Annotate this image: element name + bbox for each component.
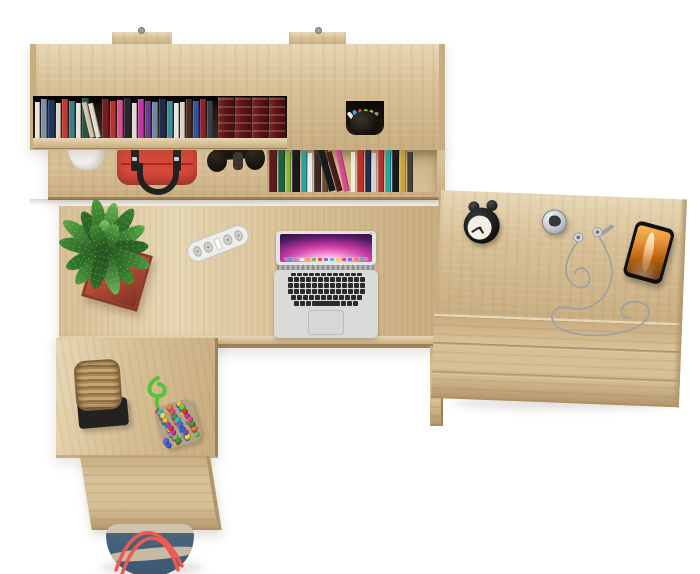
keyboard-key: [306, 283, 311, 288]
keyboard-key: [351, 295, 356, 300]
keyboard-key: [348, 289, 353, 294]
keyboard-key: [294, 301, 299, 306]
earphone-plug: [602, 226, 611, 233]
keyboard-key: [354, 289, 359, 294]
keyboard-key: [297, 295, 302, 300]
keyboard-key: [342, 283, 347, 288]
phone-screen-glow: [640, 231, 657, 272]
shelf-upper-opening: [33, 96, 287, 138]
keyboard-key: [297, 273, 302, 276]
keyboard-key: [288, 277, 293, 282]
encyclopedia-spine: [252, 97, 268, 138]
book-spine: [372, 153, 377, 192]
pen-cup-nook: [346, 101, 384, 135]
power-socket: [222, 233, 234, 246]
book-spine: [48, 100, 55, 138]
keyboard-key: [288, 283, 293, 288]
keyboard-key: [315, 295, 320, 300]
headphone-earcup: [207, 150, 227, 172]
keyboard-key: [345, 273, 350, 276]
keyboard-key: [300, 277, 305, 282]
book-spine: [110, 101, 116, 138]
keyboard-key: [309, 295, 314, 300]
keyboard-row: [286, 301, 366, 306]
keyboard-key: [306, 301, 311, 306]
power-socket: [202, 241, 214, 254]
book-spine: [132, 103, 137, 138]
keyboard-key: [330, 277, 335, 282]
dock-icon: [360, 258, 364, 261]
flower-pot-body: [68, 147, 106, 170]
keyboard-key: [347, 301, 352, 306]
laptop-trackpad: [308, 310, 344, 335]
keyboard-key: [288, 289, 293, 294]
book-spine: [200, 99, 206, 138]
plant-foliage: [56, 202, 152, 298]
keyboard-key: [306, 277, 311, 282]
book-spine: [407, 152, 413, 192]
keyboard-key: [324, 289, 329, 294]
keyboard-key: [360, 277, 365, 282]
keyboard-key: [315, 273, 320, 276]
keyboard-key: [324, 277, 329, 282]
book-spine: [308, 153, 313, 192]
keyboard-key: [294, 289, 299, 294]
book-spine: [400, 150, 406, 192]
book-spine: [207, 101, 213, 138]
power-socket: [192, 245, 204, 258]
alarm-clock: [463, 203, 505, 247]
book-spine: [292, 146, 300, 192]
book-spine: [301, 151, 307, 192]
mount-screw-right-icon: [315, 27, 322, 34]
keyboard-key: [291, 295, 296, 300]
keyboard-key: [309, 273, 314, 276]
keyboard-key: [303, 295, 308, 300]
dock-icon: [348, 258, 352, 261]
drawer-seam: [432, 371, 680, 384]
keyboard-key: [353, 301, 358, 306]
keyboard-key: [294, 277, 299, 282]
keyboard-key: [291, 273, 296, 276]
book-spine: [152, 102, 158, 138]
keyboard-key: [327, 295, 332, 300]
dock-icon: [312, 258, 316, 261]
laptop-deck: [274, 270, 378, 338]
keyboard-key: [306, 289, 311, 294]
book-spine: [286, 152, 291, 192]
keyboard-key: [300, 289, 305, 294]
book-spine: [167, 101, 173, 138]
keyboard-key: [336, 277, 341, 282]
book-spine: [159, 99, 166, 138]
keyboard-key: [360, 283, 365, 288]
keyboard-row: [286, 283, 366, 288]
keyboard-key: [318, 289, 323, 294]
clock-center-pin: [478, 226, 481, 229]
keyboard-key: [300, 283, 305, 288]
keyboard-key: [321, 295, 326, 300]
book-spine: [278, 147, 285, 192]
book-spine: [62, 99, 68, 138]
headphone-hinge: [233, 152, 243, 170]
keyboard-key: [351, 273, 356, 276]
laptop-dock: [284, 257, 368, 261]
book-spine: [186, 99, 192, 138]
dock-icon: [318, 258, 322, 261]
encyclopedia-set: [217, 96, 285, 138]
keyboard-key: [342, 277, 347, 282]
keyboard-key: [324, 283, 329, 288]
shelf-books-lower: [267, 145, 437, 192]
book-spine: [378, 148, 384, 192]
keyboard-key: [303, 273, 308, 276]
keyboard-key: [357, 273, 362, 276]
keyboard-row: [286, 295, 366, 300]
keyboard-key: [336, 289, 341, 294]
keyboard-row: [286, 277, 366, 282]
handbag-handle: [137, 163, 179, 195]
laptop-lid: [276, 231, 376, 265]
laptop-screen: [280, 234, 372, 262]
keyboard-row: [286, 289, 366, 294]
pen-cup: [350, 111, 380, 135]
shelf-board-edge: [33, 138, 287, 149]
keyboard-key: [294, 283, 299, 288]
keyboard-key: [342, 289, 347, 294]
book-spine: [351, 152, 356, 192]
book-spine: [35, 102, 40, 138]
bead: [175, 437, 182, 444]
keyboard-key: [312, 277, 317, 282]
dock-icon: [324, 258, 328, 261]
book-spine: [138, 99, 144, 138]
tote-handles: [108, 512, 192, 574]
keyboard-key: [312, 283, 317, 288]
spacebar: [312, 301, 340, 306]
wicker-basket: [73, 358, 122, 411]
keyboard-key: [327, 273, 332, 276]
keyboard-key: [336, 283, 341, 288]
book-spine: [365, 150, 371, 192]
encyclopedia-spine: [269, 97, 285, 138]
book-spine: [69, 101, 75, 138]
book-spine: [392, 147, 399, 192]
keyboard-key: [360, 289, 365, 294]
red-handbag: [117, 145, 197, 197]
dock-icon: [354, 258, 358, 261]
dock-icon: [306, 258, 310, 261]
keyboard-key: [339, 295, 344, 300]
dock-icon: [288, 258, 292, 261]
book-spine: [41, 99, 47, 138]
book-spine: [56, 103, 61, 138]
handbag-buckle: [174, 157, 179, 161]
keyboard-row: [286, 273, 366, 276]
keyboard-key: [348, 277, 353, 282]
dock-icon: [294, 258, 298, 261]
keyboard-key: [348, 283, 353, 288]
keyboard-key: [330, 283, 335, 288]
keyboard-key: [345, 295, 350, 300]
book-spine: [145, 101, 151, 138]
dock-icon: [342, 258, 346, 261]
book-spine: [385, 150, 391, 192]
keyboard-key: [354, 283, 359, 288]
book-spine: [117, 100, 123, 138]
keyboard-key: [312, 289, 317, 294]
keyboard-key: [321, 273, 326, 276]
tote-bag: [106, 524, 194, 574]
keyboard-key: [341, 301, 346, 306]
dock-icon: [330, 258, 334, 261]
mount-screw-left-icon: [138, 27, 145, 34]
keyboard-key: [357, 295, 362, 300]
keyboard-key: [300, 301, 305, 306]
dock-icon: [300, 258, 304, 261]
keyboard-key: [354, 277, 359, 282]
book-spine: [102, 99, 109, 138]
keyboard-key: [333, 273, 338, 276]
power-switch: [213, 237, 223, 250]
dock-icon: [336, 258, 340, 261]
encyclopedia-spine: [235, 97, 251, 138]
book-spine: [124, 98, 131, 138]
book-spine: [174, 103, 179, 138]
keyboard-key: [318, 277, 323, 282]
keyboard-key: [330, 289, 335, 294]
book-spine: [193, 101, 199, 138]
handbag-buckle: [132, 157, 137, 161]
encyclopedia-spine: [218, 97, 234, 138]
book-spine: [269, 150, 277, 192]
keyboard-key: [333, 295, 338, 300]
laptop-keyboard: [286, 273, 366, 307]
shelf-lower-books-bay: [267, 145, 437, 192]
keyboard-key: [318, 283, 323, 288]
book-spine: [76, 103, 81, 138]
drawer-unit: [431, 190, 687, 407]
desk-set-render: [0, 0, 700, 574]
book-spine: [357, 147, 364, 192]
sleep-light-icon: [370, 232, 373, 235]
keyboard-key: [339, 273, 344, 276]
laptop: [273, 229, 379, 339]
power-socket: [232, 229, 244, 242]
book-spine: [180, 102, 185, 138]
